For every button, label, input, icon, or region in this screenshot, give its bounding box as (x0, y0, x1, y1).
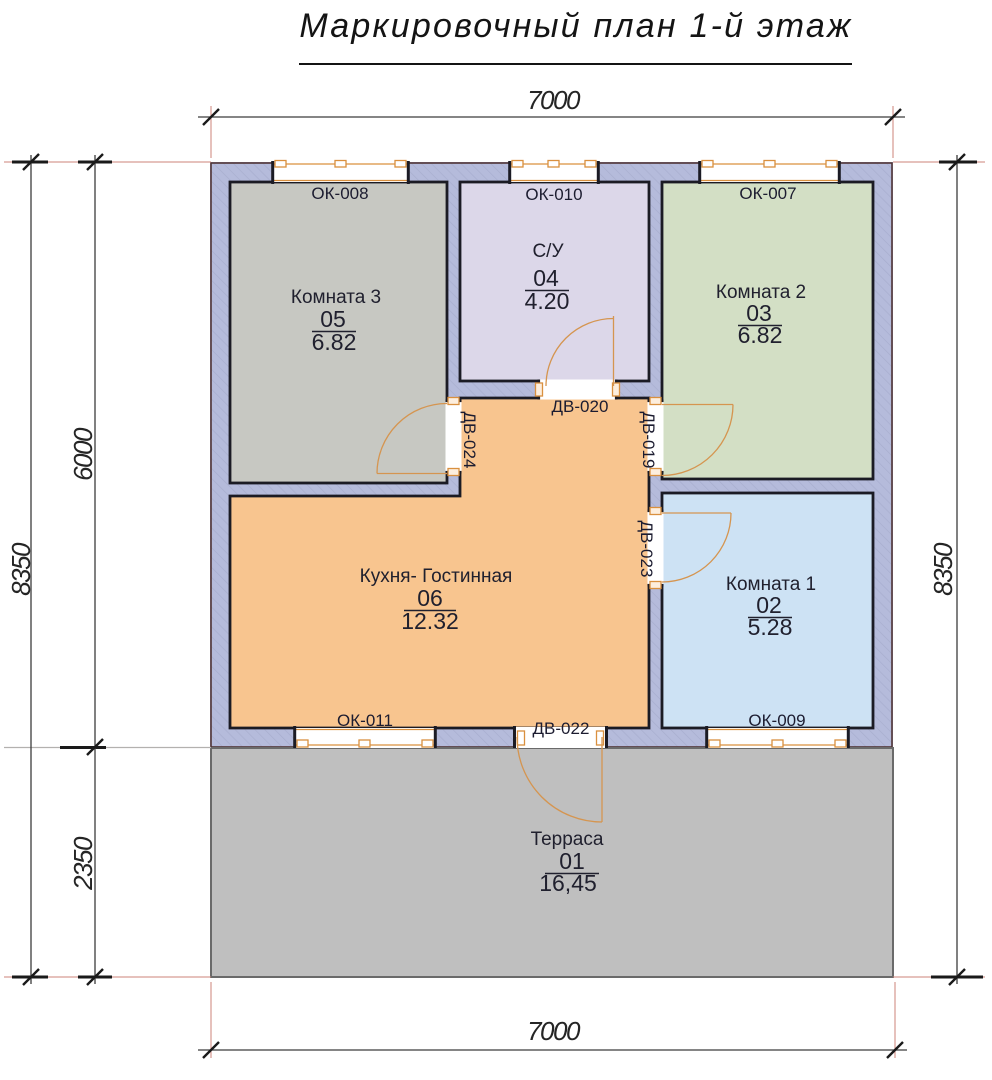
svg-text:ОК-007: ОК-007 (739, 184, 796, 203)
svg-text:Кухня- Гостинная: Кухня- Гостинная (360, 566, 513, 587)
svg-text:12.32: 12.32 (401, 608, 459, 634)
svg-text:ДВ-024: ДВ-024 (460, 412, 479, 469)
svg-text:ОК-008: ОК-008 (311, 184, 368, 203)
svg-text:ДВ-019: ДВ-019 (639, 412, 658, 469)
svg-text:2350: 2350 (68, 836, 98, 891)
svg-text:6.82: 6.82 (312, 329, 357, 355)
svg-text:С/У: С/У (532, 241, 564, 262)
svg-text:7000: 7000 (527, 85, 581, 115)
svg-text:ОК-009: ОК-009 (748, 711, 805, 730)
svg-text:Маркировочный план 1-й этаж: Маркировочный план 1-й этаж (299, 7, 852, 45)
svg-text:5.28: 5.28 (748, 614, 793, 640)
svg-text:8350: 8350 (6, 542, 36, 596)
svg-text:Терраса: Терраса (531, 829, 604, 850)
svg-text:ДВ-022: ДВ-022 (533, 719, 590, 738)
svg-text:ОК-011: ОК-011 (337, 711, 393, 730)
svg-text:7000: 7000 (527, 1016, 581, 1046)
svg-text:6.82: 6.82 (738, 322, 783, 348)
svg-text:ДВ-020: ДВ-020 (552, 397, 609, 416)
svg-text:8350: 8350 (928, 542, 958, 596)
svg-text:Комната 3: Комната 3 (291, 287, 381, 308)
svg-text:16,45: 16,45 (539, 870, 597, 896)
svg-text:ДВ-023: ДВ-023 (637, 521, 656, 578)
svg-text:ОК-010: ОК-010 (525, 185, 582, 204)
svg-text:4.20: 4.20 (525, 288, 570, 314)
svg-text:6000: 6000 (68, 427, 98, 481)
